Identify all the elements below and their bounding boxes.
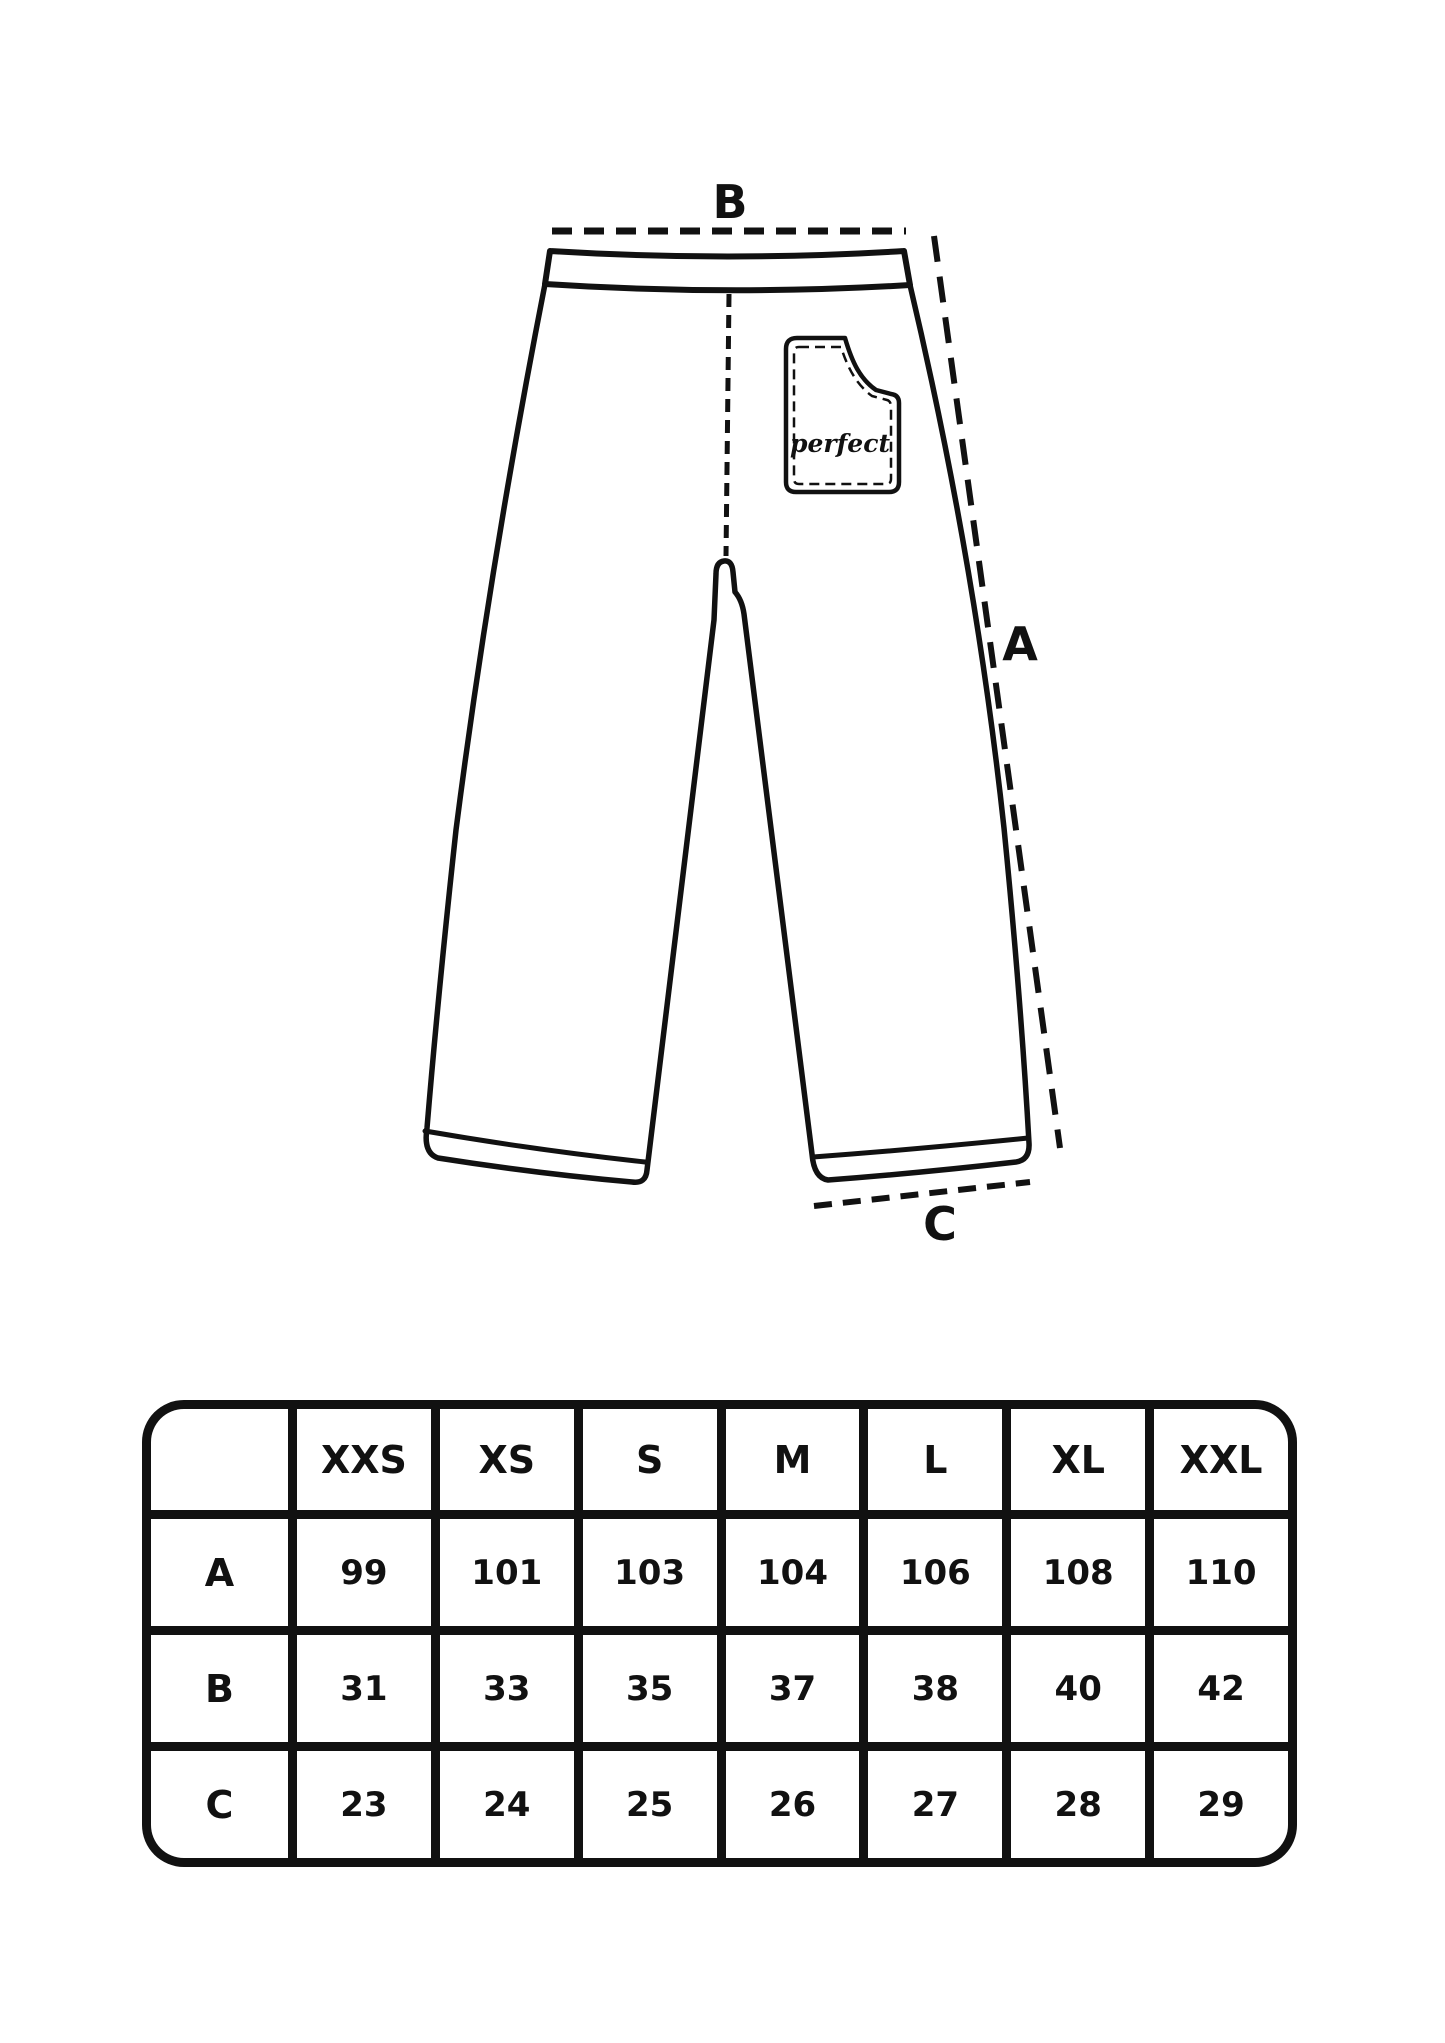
- table-cell-a-s: 103: [583, 1519, 717, 1626]
- table-cell-a-xl: 108: [1011, 1519, 1145, 1626]
- column-header-s: S: [583, 1409, 717, 1510]
- table-cell-c-xxl: 29: [1154, 1751, 1288, 1858]
- column-header-xxs: XXS: [297, 1409, 431, 1510]
- column-header-m: M: [726, 1409, 860, 1510]
- table-corner-cell: [151, 1409, 288, 1510]
- column-header-l: L: [868, 1409, 1002, 1510]
- table-cell-b-s: 35: [583, 1635, 717, 1742]
- table-cell-b-xxs: 31: [297, 1635, 431, 1742]
- pocket-logo-text: perfect: [790, 429, 890, 458]
- pants-outline: [426, 284, 1029, 1182]
- measure-line-c: [814, 1182, 1030, 1206]
- table-cell-a-xxl: 110: [1154, 1519, 1288, 1626]
- row-label-a: A: [151, 1519, 288, 1626]
- table-cell-b-xs: 33: [440, 1635, 574, 1742]
- measure-label-a: A: [1002, 617, 1038, 671]
- table-cell-a-m: 104: [726, 1519, 860, 1626]
- table-cell-c-l: 27: [868, 1751, 1002, 1858]
- table-cell-c-m: 26: [726, 1751, 860, 1858]
- table-cell-b-l: 38: [868, 1635, 1002, 1742]
- table-cell-a-l: 106: [868, 1519, 1002, 1626]
- waistband: [545, 251, 910, 290]
- table-cell-c-s: 25: [583, 1751, 717, 1858]
- measure-label-c: C: [923, 1197, 957, 1251]
- table-cell-b-xl: 40: [1011, 1635, 1145, 1742]
- table-cell-c-xl: 28: [1011, 1751, 1145, 1858]
- table-cell-b-m: 37: [726, 1635, 860, 1742]
- table-cell-b-xxl: 42: [1154, 1635, 1288, 1742]
- table-cell-c-xs: 24: [440, 1751, 574, 1858]
- size-chart-page: B A C perfect XXS XS S M L XL XXL A 99: [0, 0, 1445, 2043]
- column-header-xs: XS: [440, 1409, 574, 1510]
- column-header-xl: XL: [1011, 1409, 1145, 1510]
- size-chart-table: XXS XS S M L XL XXL A 99 101 103 104 106…: [142, 1400, 1297, 1867]
- table-cell-a-xxs: 99: [297, 1519, 431, 1626]
- table-cell-a-xs: 101: [440, 1519, 574, 1626]
- column-header-xxl: XXL: [1154, 1409, 1288, 1510]
- measure-label-b: B: [712, 175, 747, 229]
- pants-diagram: B A C perfect: [0, 0, 1445, 1310]
- table-cell-c-xxs: 23: [297, 1751, 431, 1858]
- row-label-b: B: [151, 1635, 288, 1742]
- row-label-c: C: [151, 1751, 288, 1858]
